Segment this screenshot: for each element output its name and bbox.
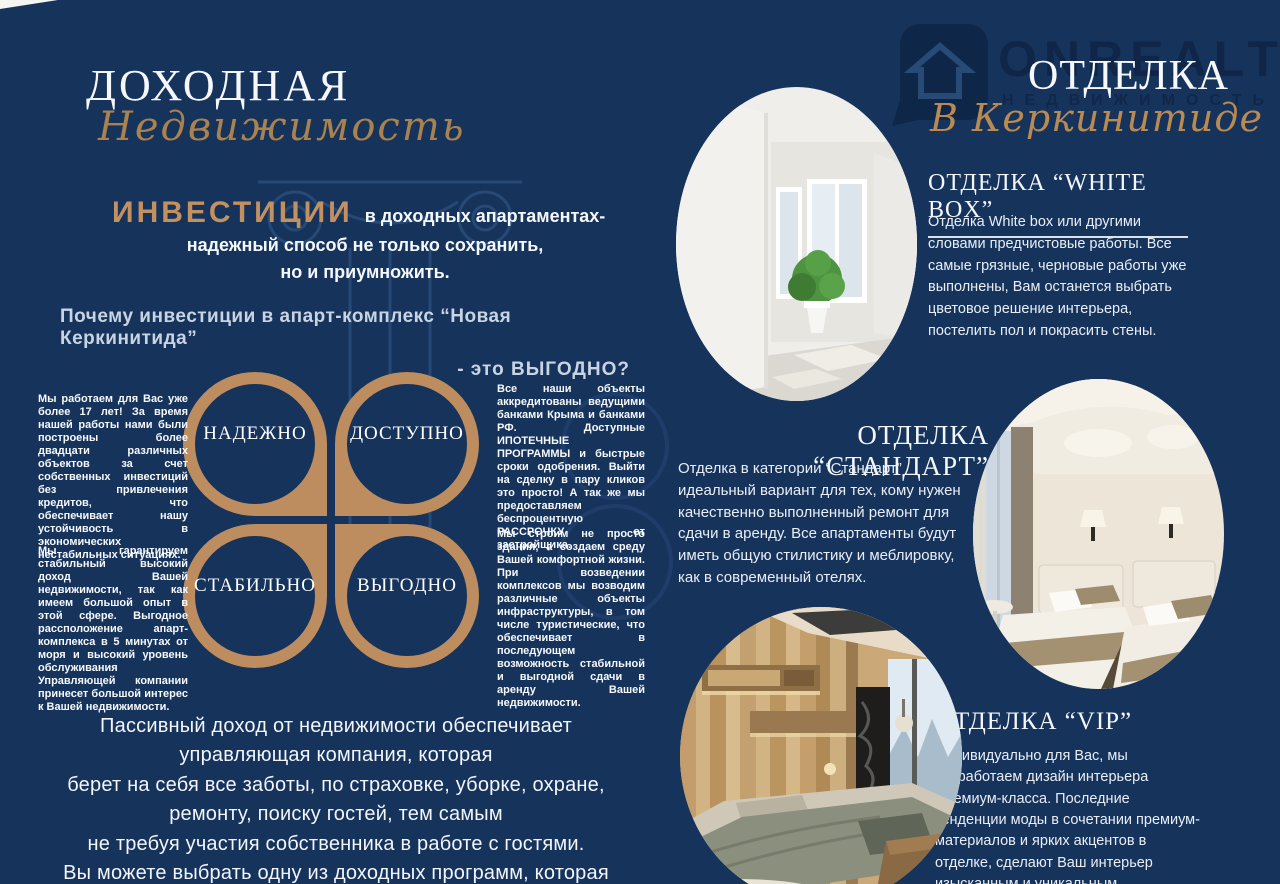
benefit-ring-stabilno: СТАБИЛЬНО xyxy=(183,524,327,668)
text-column-infrastructure: Мы строим не просто здания, а создаем ср… xyxy=(497,528,645,710)
benefit-label: ВЫГОДНО xyxy=(357,575,457,597)
why-invest-block: Почему инвестиции в апарт-комплекс “Нова… xyxy=(60,306,630,381)
investments-word: ИНВЕСТИЦИИ xyxy=(112,196,353,230)
investments-headline: ИНВЕСТИЦИИ в доходных апартаментах- xyxy=(112,196,632,230)
text-column-banks: Все наши объекты аккредитованы ведущими … xyxy=(497,383,645,552)
otdelka-title: ОТДЕЛКА xyxy=(1028,52,1229,100)
whitebox-photo xyxy=(676,87,917,401)
vip-photo xyxy=(680,607,962,884)
benefit-ring-inner: НАДЕЖНО xyxy=(195,384,315,504)
benefit-ring-inner: ДОСТУПНО xyxy=(347,384,467,504)
text-column-income: Мы гарантируем стабильный высокий доход … xyxy=(38,545,188,714)
text-column-experience: Мы работаем для Вас уже более 17 лет! За… xyxy=(38,393,188,562)
vip-body: Индивидуально для Вас, мы разработаем ди… xyxy=(935,746,1203,884)
otdelka-subtitle-script: В Керкинитиде xyxy=(930,96,1263,140)
benefit-label: СТАБИЛЬНО xyxy=(194,575,316,597)
why-invest-line1: Почему инвестиции в апарт-комплекс “Нова… xyxy=(60,306,630,350)
vip-heading: ОТДЕЛКА “VIP” xyxy=(935,708,1195,736)
whitebox-body: Отделка White box или другими словами пр… xyxy=(928,212,1200,343)
brochure-page: ДОХОДНАЯ Недвижимость ИНВЕСТИЦИИ в доход… xyxy=(0,0,1280,884)
investments-tail: в доходных апартаментах- xyxy=(365,206,606,227)
standard-photo xyxy=(973,379,1224,689)
investments-subtext: надежный способ не только сохранить, но … xyxy=(115,232,615,286)
standard-body: Отделка в категории “Стандарт” идеальный… xyxy=(678,458,970,589)
benefits-clover: НАДЕЖНО ДОСТУПНО СТАБИЛЬНО ВЫГОДНО xyxy=(183,372,479,668)
benefit-ring-vygodno: ВЫГОДНО xyxy=(335,524,479,668)
benefit-ring-dostupno: ДОСТУПНО xyxy=(335,372,479,516)
benefit-ring-inner: ВЫГОДНО xyxy=(347,536,467,656)
benefit-label: ДОСТУПНО xyxy=(350,423,464,445)
benefit-label: НАДЕЖНО xyxy=(203,423,306,445)
benefit-ring-inner: СТАБИЛЬНО xyxy=(195,536,315,656)
corner-sliver xyxy=(0,0,58,9)
passive-income-paragraph: Пассивный доход от недвижимости обеспечи… xyxy=(30,712,642,884)
benefit-ring-nadezhno: НАДЕЖНО xyxy=(183,372,327,516)
